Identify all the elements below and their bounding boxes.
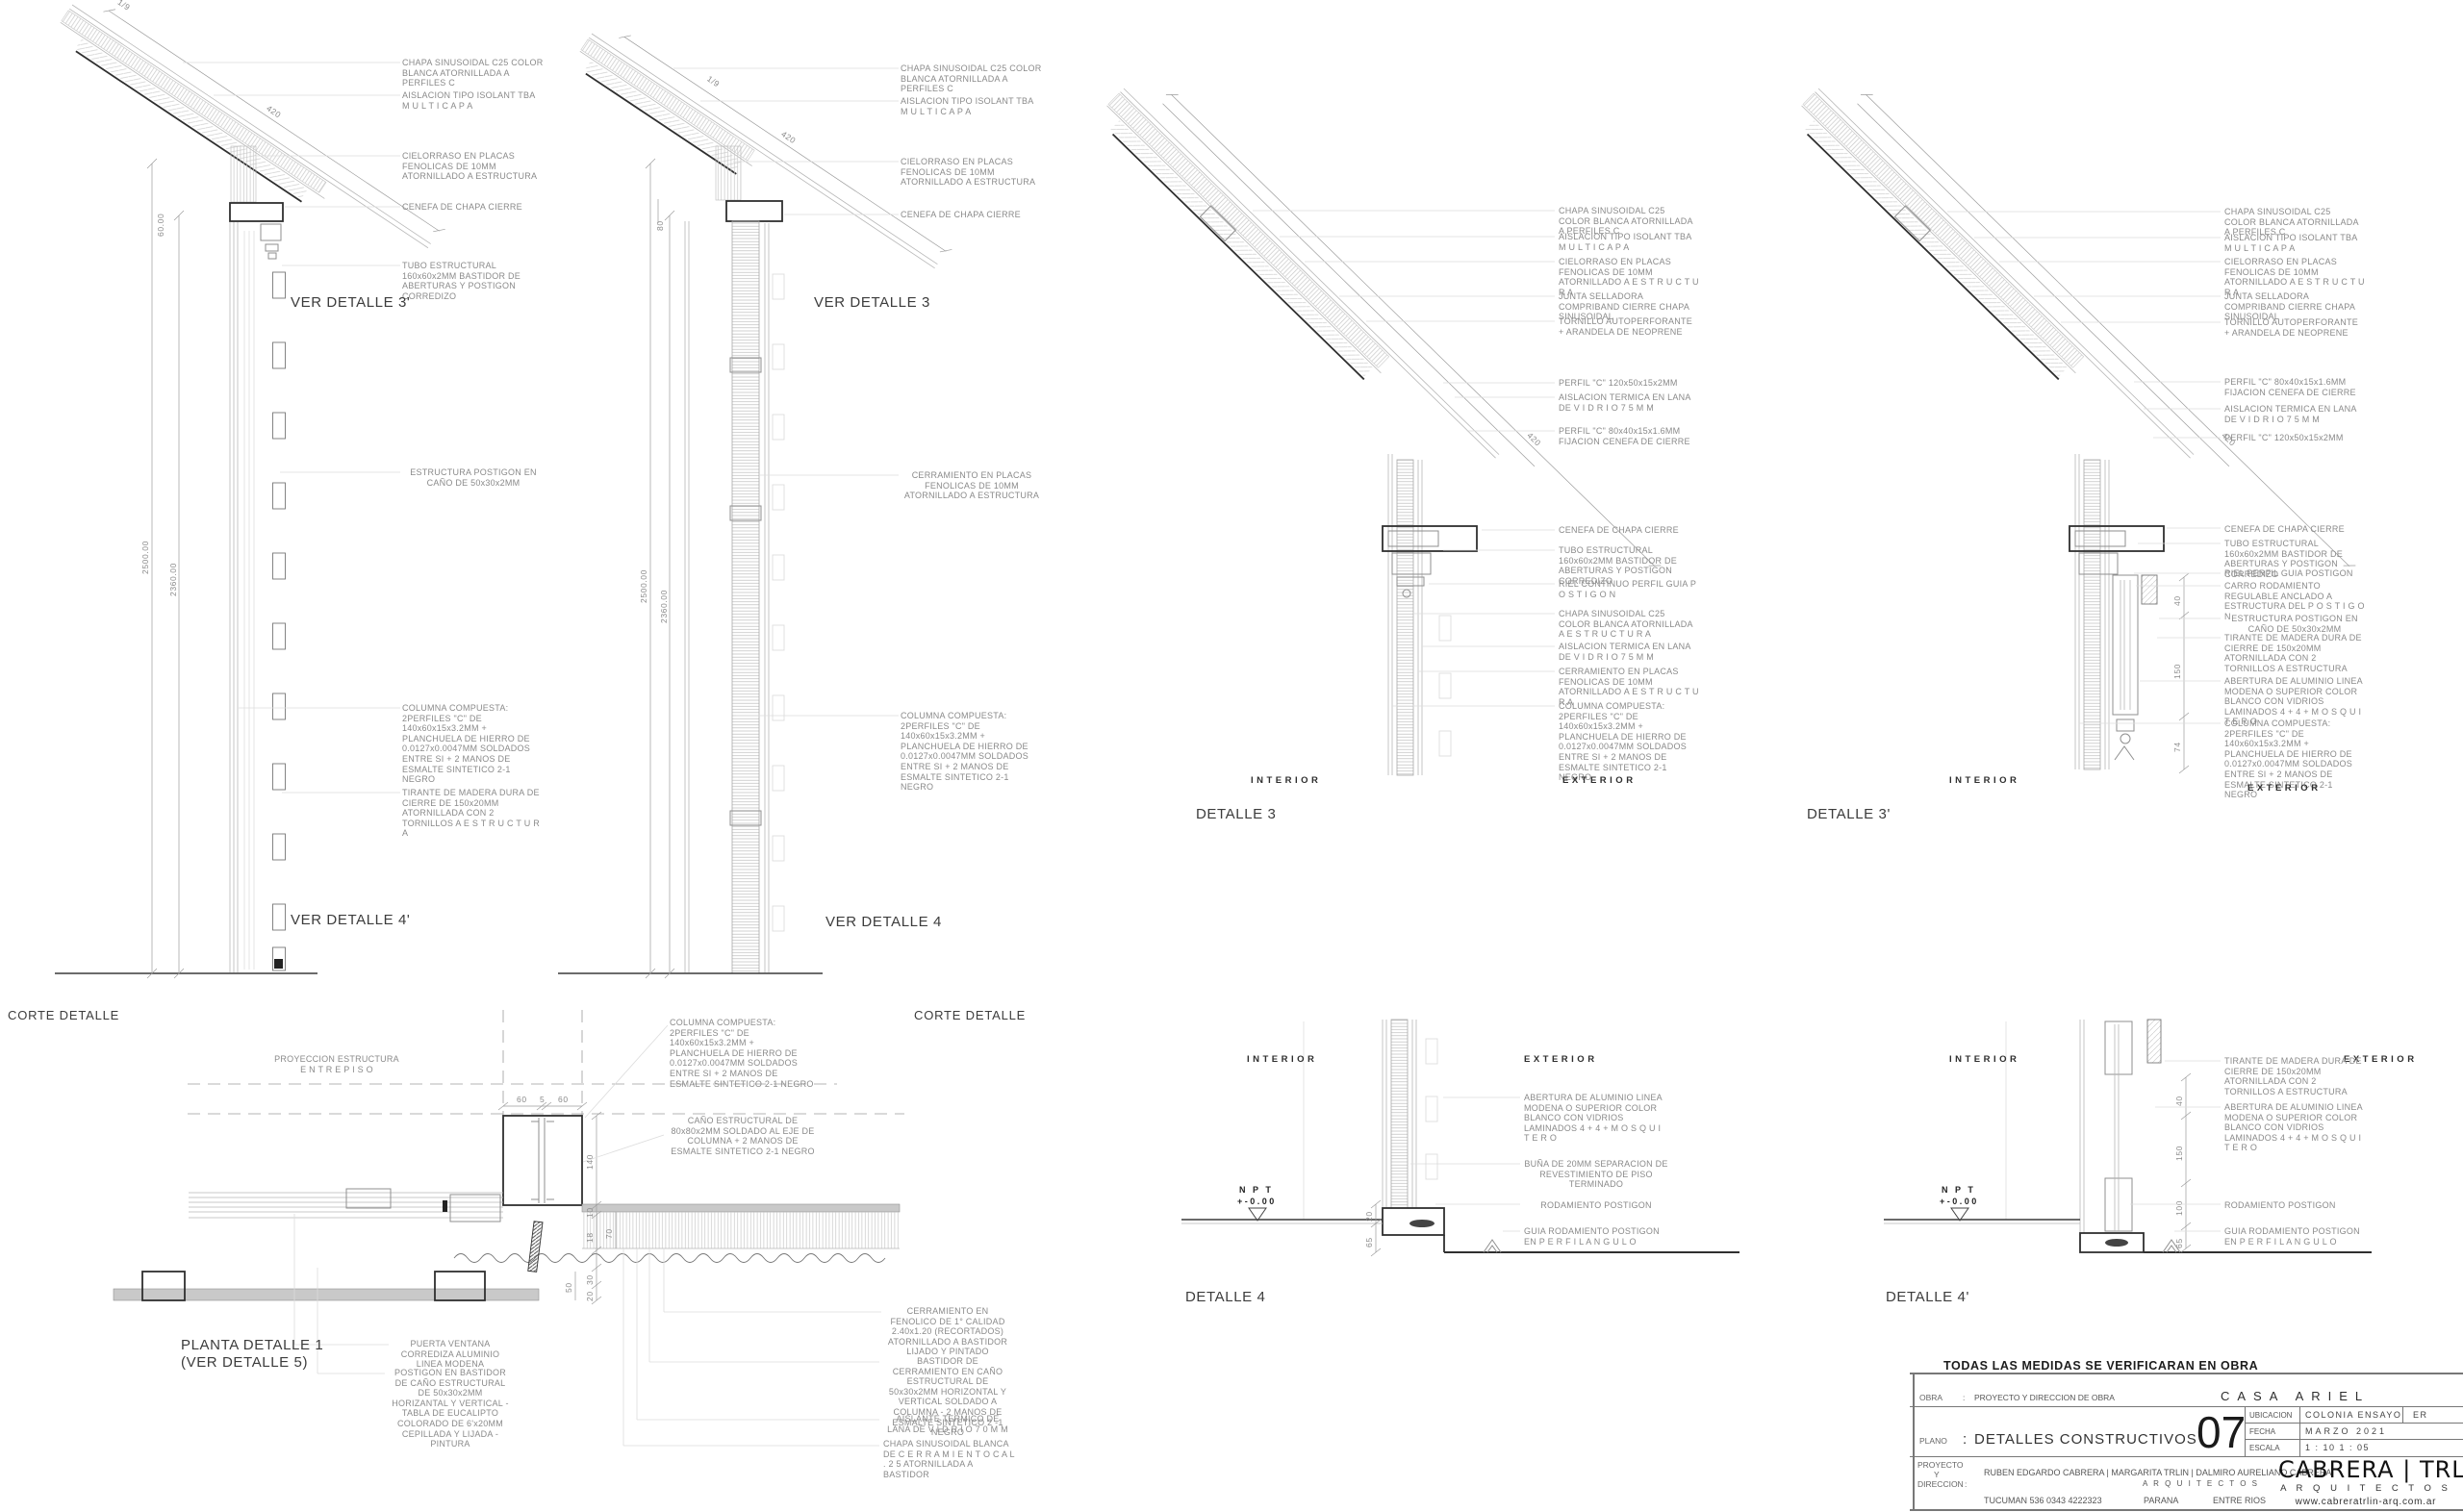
ver-detalle-4p-label: VER DETALLE 4' xyxy=(291,912,410,928)
escala-value: 1 : 10 1 : 05 xyxy=(2305,1443,2370,1452)
interior-label: INTERIOR xyxy=(1949,1054,2019,1065)
studio-address: TUCUMAN 536 0343 4222323 xyxy=(1984,1496,2102,1505)
annotation-aislacion-isolant: AISLACION TIPO ISOLANT TBA M U L T I C A… xyxy=(402,90,545,111)
ver-detalle-3p-label: VER DETALLE 3' xyxy=(291,294,410,311)
annotation-cielorraso: CIELORRASO EN PLACAS FENOLICAS DE 10MM A… xyxy=(901,157,1043,188)
annotation-postigon-bastidor: POSTIGON EN BASTIDOR DE CAÑO ESTRUCTURAL… xyxy=(389,1368,512,1449)
planta-detalle-title-line1: PLANTA DETALLE 1 xyxy=(181,1337,323,1353)
annotation-aislacion-isolant: AISLACION TIPO ISOLANT TBA M U L T I C A… xyxy=(1559,232,1699,252)
exterior-label: EXTERIOR xyxy=(1524,1054,1598,1065)
dim-label: 2500.00 xyxy=(140,541,150,574)
titleblock-rule xyxy=(2245,1439,2463,1440)
annotation-tirante-madera: TIRANTE DE MADERA DURA DE CIERRE DE 150x… xyxy=(402,788,545,839)
annotation-tornillo: TORNILLO AUTOPERFORANTE + ARANDELA DE NE… xyxy=(1559,316,1699,337)
annotation-buna: BUÑA DE 20MM SEPARACION DE REVESTIMIENTO… xyxy=(1524,1159,1668,1190)
annotation-tubo-estructural: TUBO ESTRUCTURAL 160x60x2MM BASTIDOR DE … xyxy=(402,261,545,301)
ver-detalle-4-label: VER DETALLE 4 xyxy=(825,914,942,930)
titleblock-divider xyxy=(2299,1406,2300,1456)
detalle-4p-title: DETALLE 4' xyxy=(1886,1289,1969,1305)
annotation-abertura-aluminio: ABERTURA DE ALUMINIO LINEA MODENA O SUPE… xyxy=(1524,1093,1668,1144)
annotation-cenefa: CENEFA DE CHAPA CIERRE xyxy=(901,210,1043,220)
annotation-puerta-ventana: PUERTA VENTANA CORREDIZA ALUMINIO LINEA … xyxy=(393,1339,508,1370)
dim-label: 420 xyxy=(265,103,283,119)
plano-value: DETALLES CONSTRUCTIVOS xyxy=(1974,1431,2197,1448)
annotation-abertura-aluminio: ABERTURA DE ALUMINIO LINEA MODENA O SUPE… xyxy=(2224,1102,2369,1153)
titleblock-rule xyxy=(1910,1373,2463,1374)
npt-label: N P T xyxy=(1942,1185,1975,1195)
annotation-chapa-sinusoidal: CHAPA SINUSOIDAL C25 COLOR BLANCA ATORNI… xyxy=(901,63,1043,94)
interior-label: INTERIOR xyxy=(1247,1054,1317,1065)
fecha-label: FECHA xyxy=(2249,1427,2275,1436)
obra-label: OBRA xyxy=(1919,1393,1942,1402)
annotation-cenefa: CENEFA DE CHAPA CIERRE xyxy=(1559,525,1699,536)
annotation-columna-compuesta: COLUMNA COMPUESTA: 2PERFILES "C" DE 140x… xyxy=(670,1018,814,1089)
architects-suffix: A R Q U I T E C T O S xyxy=(2069,1479,2259,1488)
sheet-number: 07 xyxy=(2196,1406,2246,1458)
annotation-rodamiento: RODAMIENTO POSTIGON xyxy=(2224,1200,2369,1211)
annotation-lana-vidrio: AISLACION TERMICA EN LANA DE V I D R I O… xyxy=(1559,392,1699,413)
dim-label: 2500.00 xyxy=(639,569,648,603)
titleblock-border xyxy=(1913,1373,1915,1510)
annotation-columna-compuesta: COLUMNA COMPUESTA: 2PERFILES "C" DE 140x… xyxy=(402,703,545,785)
annotation-chapa-blanca: CHAPA SINUSOIDAL BLANCA DE C E R R A M I… xyxy=(883,1439,1016,1479)
corte-detalle-2-drawing: 420 1/9 2500.00 236 xyxy=(558,7,959,978)
annotation-rodamiento: RODAMIENTO POSTIGON xyxy=(1524,1200,1668,1211)
dim-label: 60 xyxy=(558,1095,569,1104)
titleblock-rule xyxy=(1910,1406,2463,1407)
annotation-cano-estructural: CAÑO ESTRUCTURAL DE 80x80x2MM SOLDADO AL… xyxy=(666,1116,820,1156)
annotation-perfil-c-80: PERFIL "C" 80x40x15x1.6MM FIJACION CENEF… xyxy=(2224,377,2365,397)
titleblock-rule xyxy=(2245,1423,2463,1424)
verification-note: TODAS LAS MEDIDAS SE VERIFICARAN EN OBRA xyxy=(1943,1359,2258,1373)
ubicacion-value: COLONIA ENSAYO xyxy=(2305,1410,2401,1420)
annotation-cerramiento-placas: CERRAMIENTO EN PLACAS FENOLICAS DE 10MM … xyxy=(901,470,1043,501)
planta-detalle-title-line2: (VER DETALLE 5) xyxy=(181,1354,308,1371)
annotation-estructura-postigon: ESTRUCTURA POSTIGON EN CAÑO DE 50x30x2MM xyxy=(2224,614,2365,634)
titleblock-divider xyxy=(2402,1406,2403,1423)
annotation-riel-guia: RIEL CONTINUO PERFIL GUIA P O S T I G O … xyxy=(1559,579,1699,599)
annotation-tirante-madera: TIRANTE DE MADERA DURA DE CIERRE DE 150x… xyxy=(2224,1056,2369,1096)
annotation-chapa-estructura: CHAPA SINUSOIDAL C25 COLOR BLANCA ATORNI… xyxy=(1559,609,1699,640)
annotation-guia-rodamiento: GUIA RODAMIENTO POSTIGON EN P E R F I L … xyxy=(2224,1226,2369,1247)
drawing-linework: .thin{stroke:#b7b7b7;stroke-width:0.8;fi… xyxy=(0,0,2463,1512)
obra-separator: : xyxy=(1963,1393,1965,1402)
annotation-cerramiento-fenolico: CERRAMIENTO EN FENOLICO DE 1° CALIDAD 2.… xyxy=(885,1306,1010,1357)
annotation-aislacion-isolant: AISLACION TIPO ISOLANT TBA M U L T I C A… xyxy=(901,96,1043,116)
ubicacion-province: ER xyxy=(2413,1410,2428,1420)
detalle-4-title: DETALLE 4 xyxy=(1185,1289,1266,1305)
dim-label: 150 xyxy=(2174,1146,2184,1161)
proyecto-label-2: Y xyxy=(1934,1470,1940,1479)
dim-label: 420 xyxy=(779,129,798,145)
dim-label: 40 xyxy=(2174,1096,2184,1106)
dim-label: 40 xyxy=(2172,595,2182,606)
annotation-aislacion-isolant: AISLACION TIPO ISOLANT TBA M U L T I C A… xyxy=(2224,233,2365,253)
annotation-tirante-madera: TIRANTE DE MADERA DURA DE CIERRE DE 150x… xyxy=(2224,633,2365,673)
npt-level: +-0.00 xyxy=(1940,1197,1979,1206)
dim-label: 5 xyxy=(540,1095,545,1104)
plano-label: PLANO xyxy=(1919,1436,1947,1446)
ver-detalle-3-label: VER DETALLE 3 xyxy=(814,294,930,311)
dim-label: 70 xyxy=(604,1228,614,1239)
annotation-columna-compuesta: COLUMNA COMPUESTA: 2PERFILES "C" DE 140x… xyxy=(1559,701,1699,783)
annotation-lana-vidrio: AISLACION TERMICA EN LANA DE V I D R I O… xyxy=(2224,404,2365,424)
exterior-label: EXTERIOR xyxy=(2247,783,2322,794)
dim-label: 60.00 xyxy=(156,214,165,237)
dim-label: 65 xyxy=(1364,1237,1374,1247)
detalle-3p-title: DETALLE 3' xyxy=(1807,806,1891,822)
annotation-cenefa: CENEFA DE CHAPA CIERRE xyxy=(402,202,545,213)
titleblock-rule xyxy=(1910,1509,2463,1511)
obra-value: PROYECTO Y DIRECCION DE OBRA xyxy=(1974,1393,2115,1402)
dim-label: 420 xyxy=(1525,430,1542,447)
studio-province: ENTRE RIOS xyxy=(2213,1496,2266,1505)
annotation-guia-rodamiento: GUIA RODAMIENTO POSTIGON EN P E R F I L … xyxy=(1524,1226,1668,1247)
corte-detalle-1-title: CORTE DETALLE xyxy=(8,1008,119,1022)
ubicacion-label: UBICACION xyxy=(2249,1411,2292,1420)
annotation-riel-guia: RIEL PERFIL GUIA POSTIGON xyxy=(2224,568,2365,579)
dim-label: 150 xyxy=(2172,664,2182,679)
dim-label: 2360.00 xyxy=(168,563,178,596)
annotation-lana-vidrio-2: AISLACION TERMICA EN LANA DE V I D R I O… xyxy=(1559,642,1699,662)
escala-label: ESCALA xyxy=(2249,1444,2280,1452)
proyecto-separator: : xyxy=(1965,1479,1967,1489)
drawing-sheet: .thin{stroke:#b7b7b7;stroke-width:0.8;fi… xyxy=(0,0,2463,1512)
dim-label: 60 xyxy=(517,1095,527,1104)
annotation-perfil-c-120: PERFIL "C" 120x50x15x2MM xyxy=(2224,433,2365,443)
annotation-perfil-c-120: PERFIL "C" 120x50x15x2MM xyxy=(1559,378,1699,389)
dim-label: 65 xyxy=(2174,1238,2184,1248)
annotation-cenefa: CENEFA DE CHAPA CIERRE xyxy=(2224,524,2365,535)
project-name: CASA ARIEL xyxy=(2221,1389,2370,1403)
annotation-proyeccion-entrepiso: PROYECCION ESTRUCTURA E N T R E P I S O xyxy=(274,1054,399,1074)
dim-label: 10 xyxy=(585,1207,595,1218)
dim-label: 1/9 xyxy=(115,0,132,13)
dim-label: 18 xyxy=(585,1232,595,1243)
plano-separator: : xyxy=(1963,1431,1968,1448)
dim-label: 100 xyxy=(2174,1200,2184,1216)
corte-detalle-1-drawing: 420 1/9 250 xyxy=(52,0,453,978)
dim-label: 74 xyxy=(2172,742,2182,752)
npt-label: N P T xyxy=(1239,1185,1273,1195)
proyecto-label-1: PROYECTO xyxy=(1917,1460,1964,1470)
detalle-3-title: DETALLE 3 xyxy=(1196,806,1277,822)
dim-label: 30 xyxy=(585,1274,595,1285)
dim-label: 1/9 xyxy=(705,74,722,89)
dim-label: 20 xyxy=(585,1291,595,1301)
proyecto-label-3: DIRECCION xyxy=(1917,1479,1964,1489)
interior-label: INTERIOR xyxy=(1949,775,2019,786)
studio-subtitle: A R Q U I T E C T O S xyxy=(2278,1483,2453,1494)
annotation-cielorraso: CIELORRASO EN PLACAS FENOLICAS DE 10MM A… xyxy=(402,151,545,182)
corte-detalle-2-title: CORTE DETALLE xyxy=(914,1008,1026,1022)
annotation-chapa-sinusoidal: CHAPA SINUSOIDAL C25 COLOR BLANCA ATORNI… xyxy=(402,58,545,88)
studio-city: PARANA xyxy=(2144,1496,2178,1505)
dim-label: 140 xyxy=(585,1154,595,1170)
studio-name: CABRERA | TRLIN xyxy=(2278,1456,2453,1483)
npt-level: +-0.00 xyxy=(1237,1197,1277,1206)
annotation-estructura-postigon: ESTRUCTURA POSTIGON EN CAÑO DE 50x30x2MM xyxy=(402,467,545,488)
dim-label: 2360.00 xyxy=(659,590,669,623)
annotation-tornillo: TORNILLO AUTOPERFORANTE + ARANDELA DE NE… xyxy=(2224,317,2365,338)
annotation-perfil-c-80: PERFIL "C" 80x40x15x1.6MM FIJACION CENEF… xyxy=(1559,426,1699,446)
fecha-value: MARZO 2021 xyxy=(2305,1426,2387,1436)
dim-label: 20 xyxy=(1364,1211,1374,1222)
exterior-label: EXTERIOR xyxy=(1562,775,1637,786)
annotation-columna-compuesta: COLUMNA COMPUESTA: 2PERFILES "C" DE 140x… xyxy=(901,711,1043,793)
interior-label: INTERIOR xyxy=(1251,775,1321,786)
dim-label: 50 xyxy=(564,1282,573,1293)
dim-label: 80 xyxy=(655,220,665,231)
studio-website: www.cabreratrlin-arq.com.ar xyxy=(2278,1497,2453,1507)
annotation-aislante-termico: AISLANTE TERMICO DE LANA DE V I D R I O … xyxy=(883,1414,1012,1434)
